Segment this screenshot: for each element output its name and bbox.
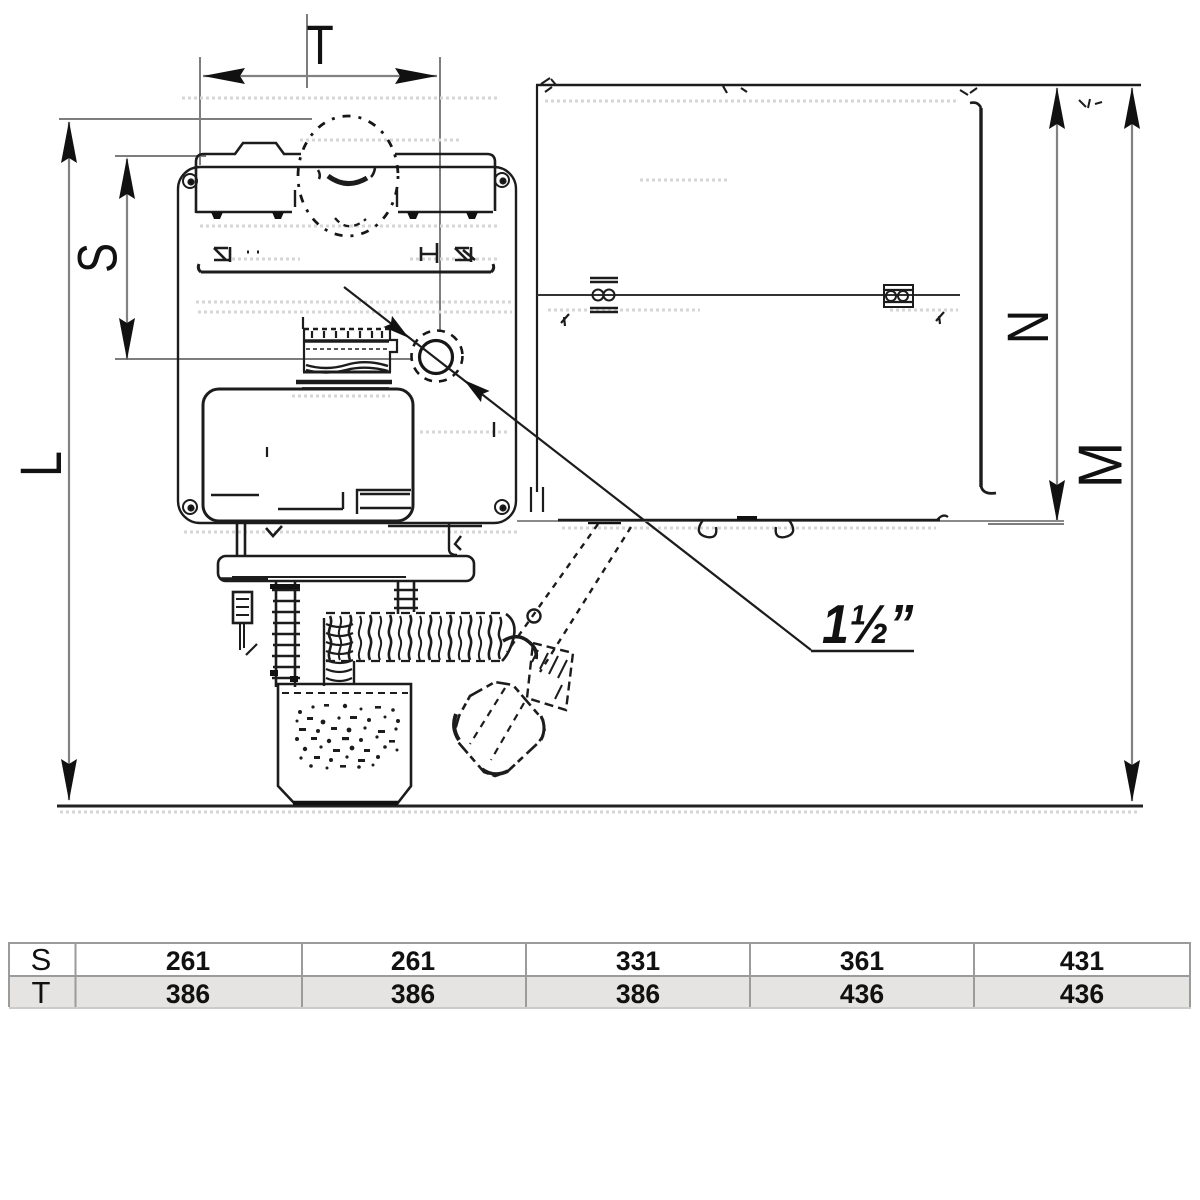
svg-text:261: 261	[166, 946, 210, 976]
svg-text:331: 331	[616, 946, 660, 976]
svg-text:T: T	[306, 13, 333, 76]
svg-text:M: M	[1067, 442, 1135, 488]
svg-text:1½”: 1½”	[822, 593, 914, 655]
svg-text:T: T	[32, 975, 51, 1010]
svg-text:N: N	[996, 310, 1061, 344]
svg-text:261: 261	[391, 946, 435, 976]
svg-text:361: 361	[840, 946, 884, 976]
svg-text:386: 386	[391, 979, 435, 1009]
svg-text:L: L	[9, 451, 74, 477]
svg-text:431: 431	[1060, 946, 1104, 976]
svg-text:436: 436	[840, 979, 884, 1009]
svg-text:S: S	[65, 243, 128, 273]
svg-text:386: 386	[166, 979, 210, 1009]
svg-text:386: 386	[616, 979, 660, 1009]
svg-text:S: S	[31, 942, 52, 977]
svg-text:436: 436	[1060, 979, 1104, 1009]
